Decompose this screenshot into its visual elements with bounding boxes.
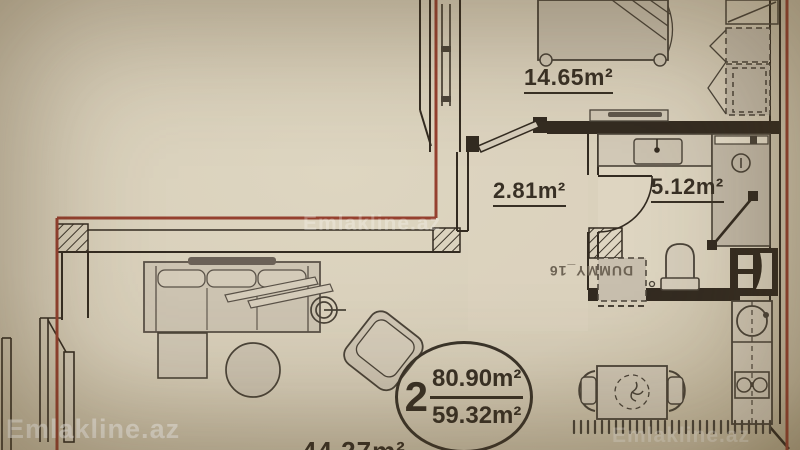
unit-area-fraction: 80.90m² 59.32m² [430,365,523,430]
bed [538,0,673,66]
kitchen-faucet-icon [763,312,769,318]
watermark-middle: Emlakline.az [303,212,441,236]
unit-area-badge: 2 80.90m² 59.32m² [395,341,533,450]
kitchen-counter [732,301,772,424]
floor-plan-photo: 14.65m² 2.81m² 5.12m² DUMMY_16 2 80.90m²… [0,0,800,450]
cad-placeholder-label: DUMMY_16 [536,263,646,279]
watermark-bottom-left: Emlakline.az [6,414,180,445]
faucet-icon [654,147,660,153]
wall-hatch-block [589,228,622,258]
coffee-table [158,333,207,378]
living-room-area-label: 44.27m² [302,436,406,450]
sofa [144,257,333,332]
unit-living-area: 59.32m² [430,396,523,430]
dining-chair-left [579,371,596,411]
dining-table [597,366,667,419]
bathroom-top-wall [547,121,780,134]
laundry-cabinet [730,248,778,296]
bathroom-area-label: 5.12m² [651,176,724,203]
bedroom-window-icon [441,4,451,106]
ottoman [226,343,280,397]
watermark-bottom-right: Emlakline.az [612,424,750,448]
left-exterior-wall [62,252,88,320]
dining-chair-right [668,371,685,411]
bedroom-area-label: 14.65m² [524,66,613,94]
unit-number: 2 [405,376,428,418]
bathroom-vanity [598,134,712,166]
bedroom-left-wall [420,0,460,152]
hall-left-wall [457,152,468,231]
bedroom-dresser [590,110,668,121]
unit-total-area: 80.90m² [430,365,523,396]
hallway-area-label: 2.81m² [493,180,566,207]
